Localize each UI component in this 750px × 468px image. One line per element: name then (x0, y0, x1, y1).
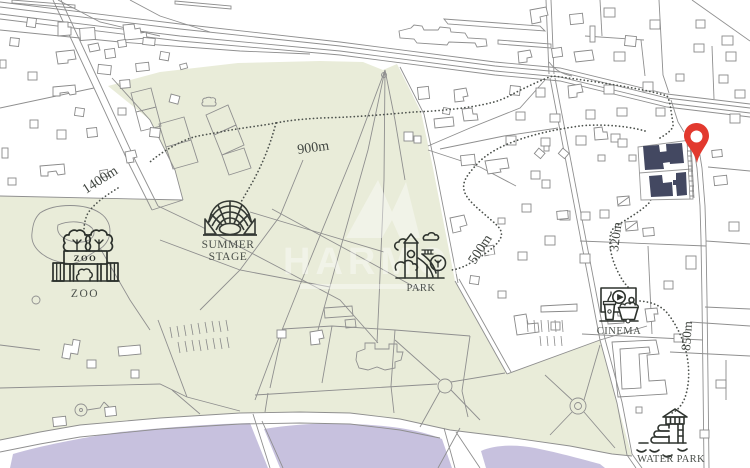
svg-text:PARK: PARK (406, 283, 435, 294)
svg-text:CINEMA: CINEMA (597, 326, 641, 337)
svg-text:ZOO: ZOO (71, 288, 99, 300)
svg-text:ZOO: ZOO (74, 253, 97, 263)
svg-text:850m: 850m (678, 321, 695, 352)
svg-text:WATER PARK: WATER PARK (637, 454, 705, 465)
svg-text:STAGE: STAGE (209, 251, 248, 263)
svg-text:SUMMER: SUMMER (202, 239, 255, 251)
